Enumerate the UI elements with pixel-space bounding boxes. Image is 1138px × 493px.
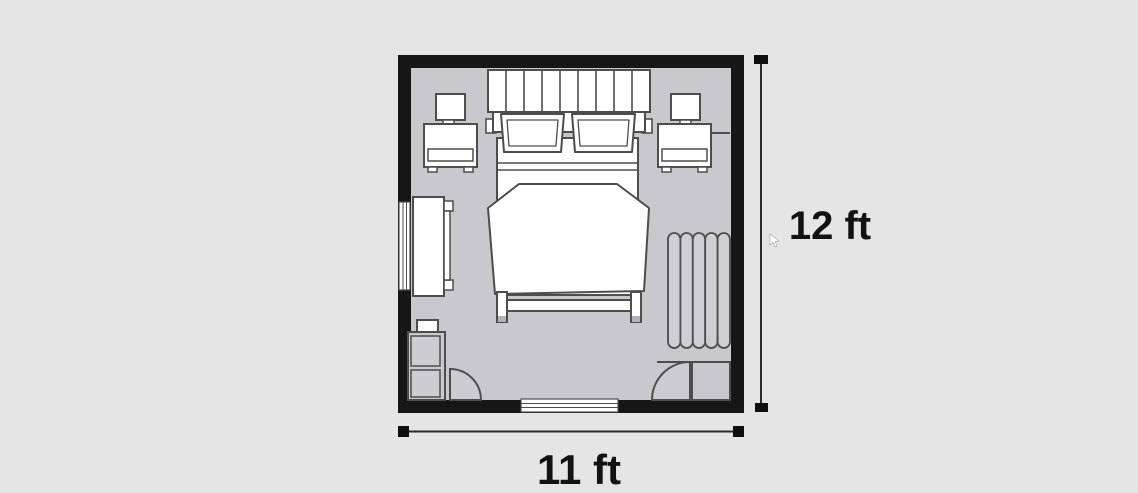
footboard-rail — [498, 300, 639, 311]
window-left-frame — [399, 202, 410, 290]
window-left-icon — [399, 202, 410, 290]
pillow-left-icon — [501, 114, 564, 152]
shelf-top-box — [417, 320, 438, 332]
nightstand-left-foot — [464, 167, 473, 172]
radiator-icon — [668, 233, 730, 348]
shelf-compartment — [411, 370, 440, 397]
dimension-width-label: 11 ft — [537, 446, 621, 493]
radiator-fin — [680, 233, 692, 348]
duvet — [488, 184, 649, 294]
shelf-compartment — [411, 336, 440, 366]
nightstand-right-foot — [698, 167, 707, 172]
dresser-rail — [444, 211, 450, 280]
nightstand-left-foot — [428, 167, 437, 172]
bed — [486, 70, 652, 322]
shelf-unit — [408, 320, 445, 400]
dresser-body — [413, 197, 444, 296]
lamp-left-shade — [436, 94, 465, 120]
floor-plan-canvas: 12 ft 11 ft — [0, 0, 1138, 493]
lamp-right-shade — [671, 94, 700, 120]
nightstand-right-foot — [662, 167, 671, 172]
pillow-right-icon — [572, 114, 635, 152]
headboard-panel — [488, 70, 650, 112]
closet — [692, 362, 730, 400]
footboard-foot-right — [632, 316, 640, 322]
floor-plan-page: 12 ft 11 ft — [0, 0, 1138, 493]
dimension-horizontal-end-left — [398, 426, 409, 437]
dresser-tab-bottom — [444, 280, 453, 290]
radiator-fin — [718, 233, 730, 348]
radiator-fin — [668, 233, 680, 348]
dimension-horizontal-end-right — [733, 426, 744, 437]
radiator-fin — [705, 233, 717, 348]
dresser-tab-top — [444, 201, 453, 211]
dimension-vertical-end-bottom — [755, 403, 768, 412]
dimension-height-label: 12 ft — [789, 204, 871, 248]
nightstand-right-drawer — [662, 149, 707, 161]
window-bottom-icon — [521, 399, 618, 412]
nightstand-left-drawer — [428, 149, 473, 161]
radiator-fin — [693, 233, 705, 348]
window-bottom-frame — [521, 399, 618, 412]
footboard-foot-left — [498, 316, 506, 322]
dimension-vertical-end-top — [754, 55, 768, 64]
dresser — [413, 197, 453, 296]
